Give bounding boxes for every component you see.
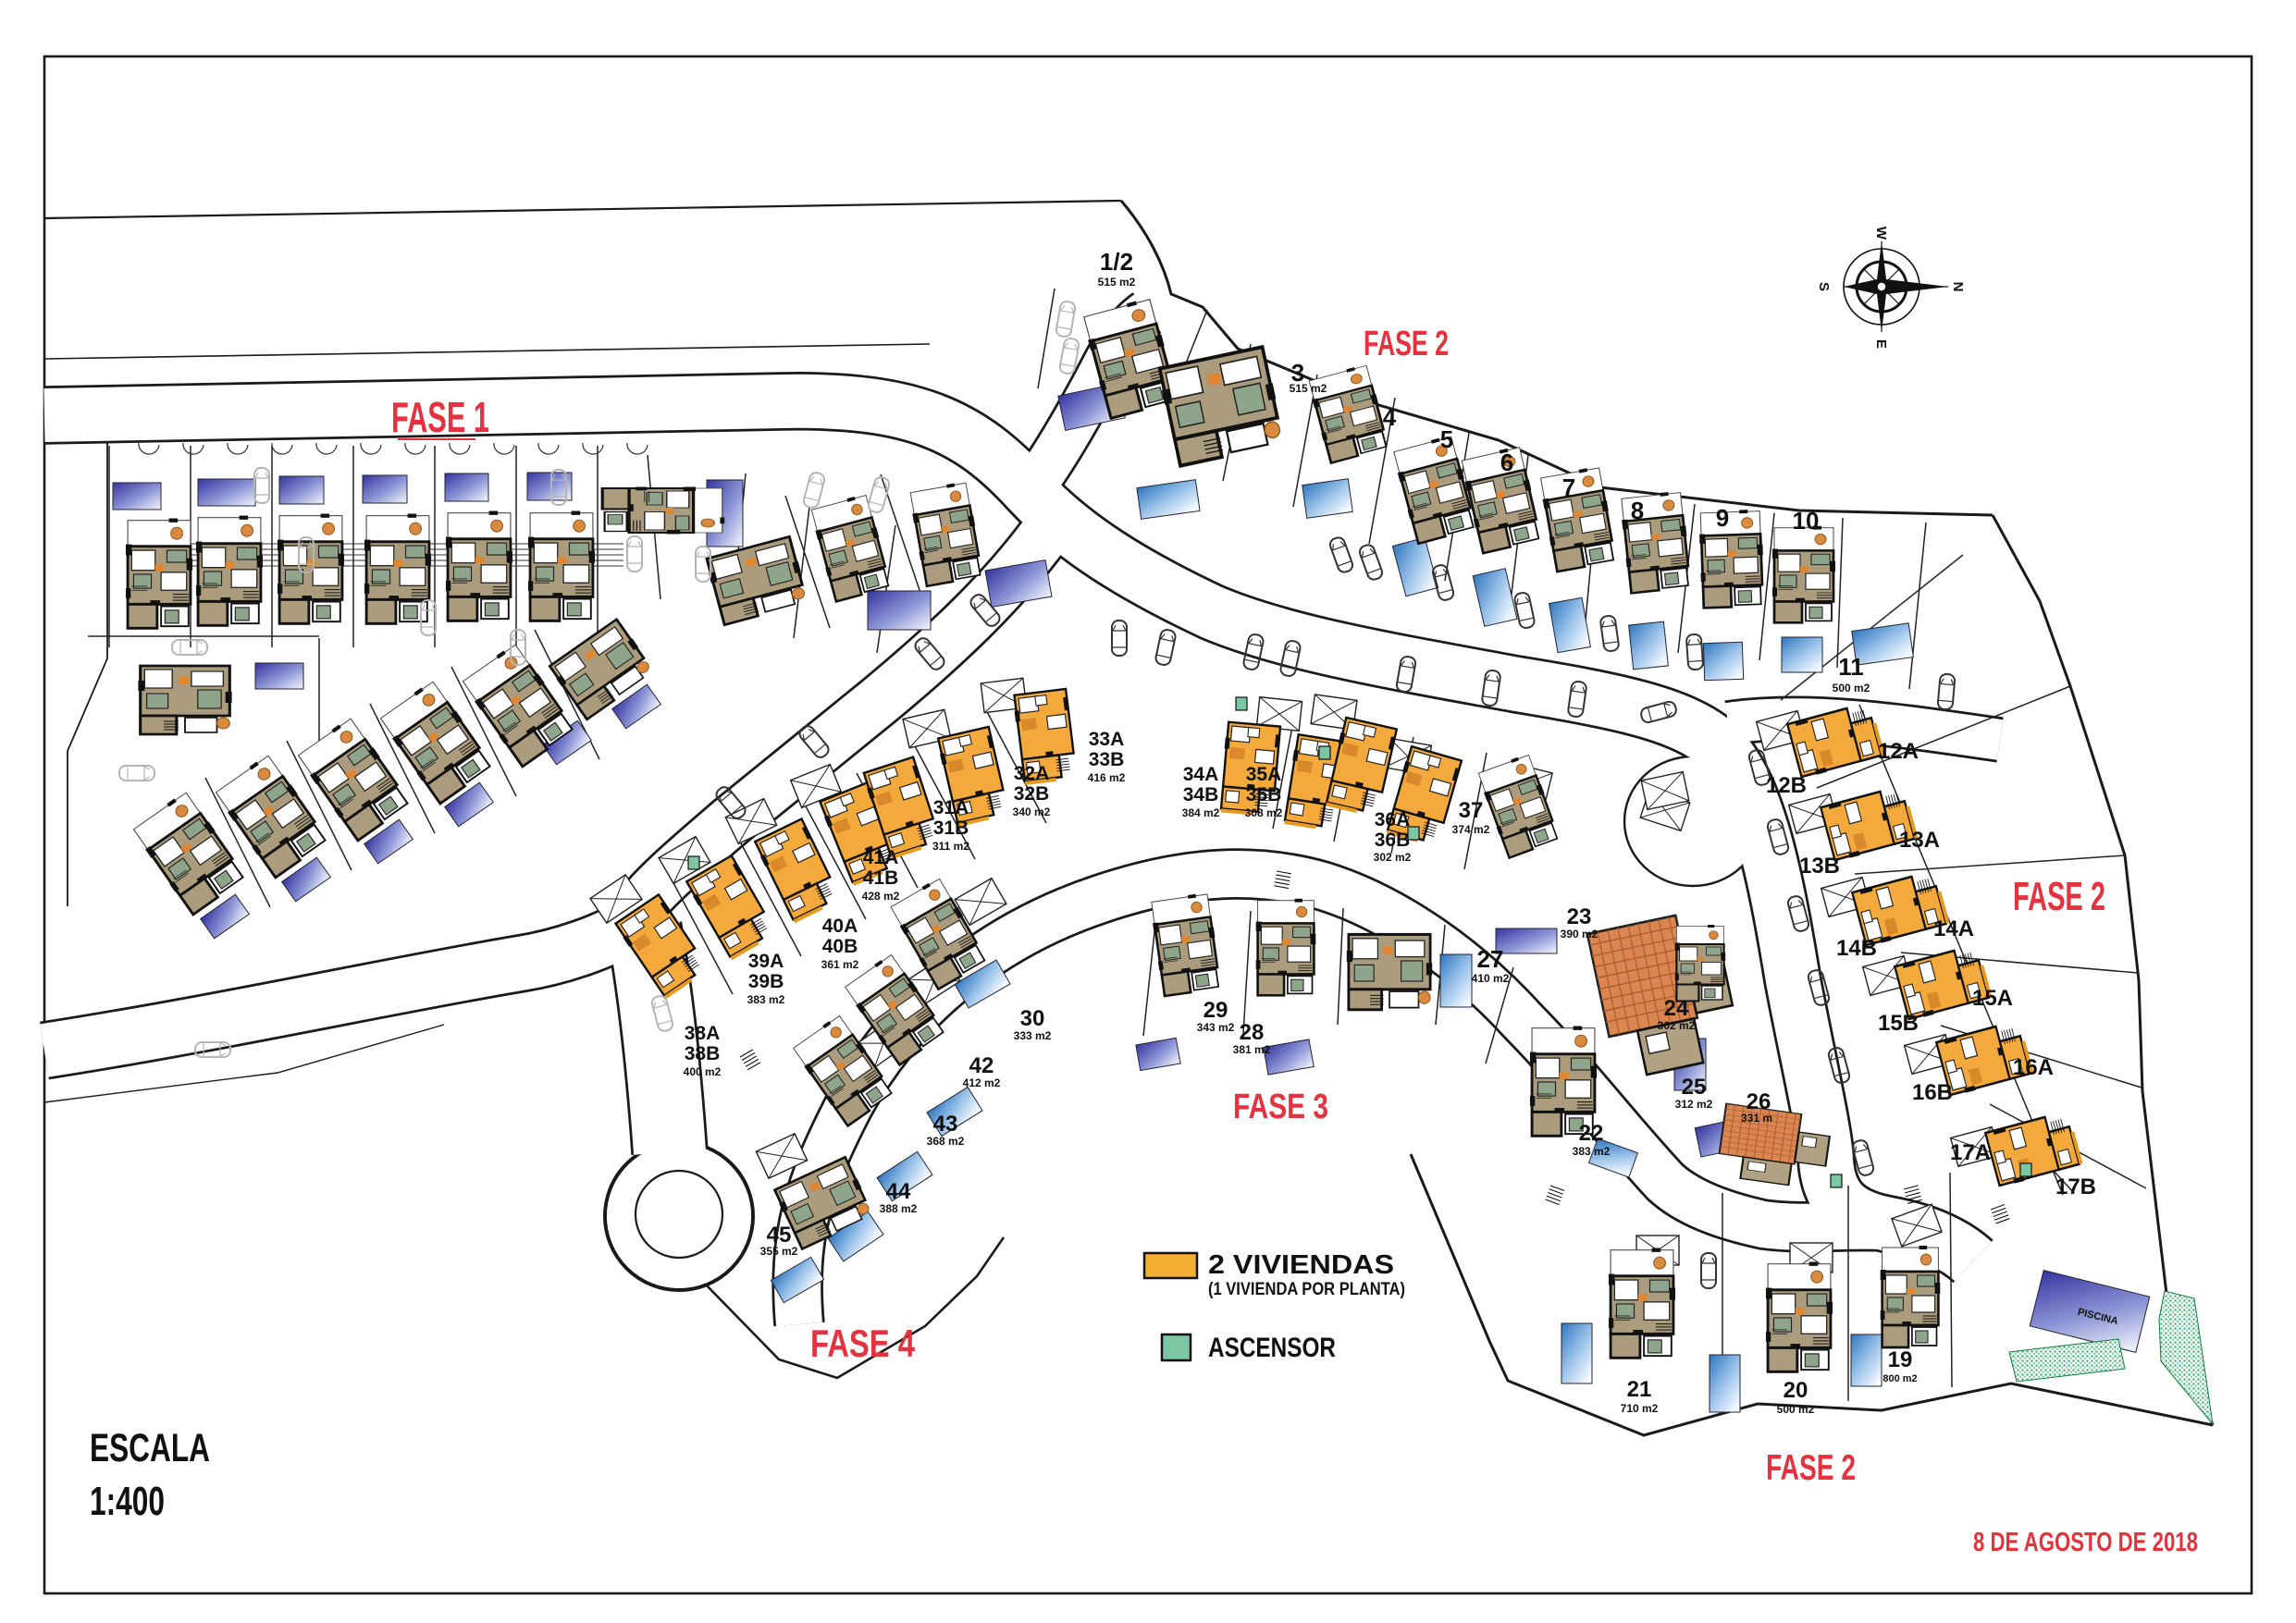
svg-text:400 m2: 400 m2 [684, 1065, 722, 1078]
svg-text:45: 45 [767, 1223, 792, 1248]
svg-text:28: 28 [1240, 1020, 1265, 1045]
svg-text:34A: 34A [1183, 764, 1219, 785]
svg-text:312 m2: 312 m2 [1675, 1098, 1713, 1111]
svg-text:21: 21 [1627, 1377, 1652, 1402]
svg-text:710 m2: 710 m2 [1621, 1402, 1659, 1415]
svg-text:27: 27 [1477, 945, 1504, 973]
svg-text:33A: 33A [1089, 729, 1125, 750]
svg-text:29: 29 [1204, 998, 1228, 1023]
svg-text:14B: 14B [1836, 936, 1877, 961]
svg-text:515 m2: 515 m2 [1098, 276, 1136, 289]
svg-text:35A: 35A [1246, 764, 1282, 785]
svg-text:331 m: 331 m [1741, 1112, 1772, 1125]
svg-text:515 m2: 515 m2 [1290, 382, 1327, 395]
svg-text:15A: 15A [1972, 986, 2013, 1011]
svg-text:368 m2: 368 m2 [927, 1135, 965, 1148]
svg-text:37: 37 [1459, 798, 1484, 823]
svg-text:24: 24 [1664, 996, 1689, 1021]
svg-text:FASE 2: FASE 2 [2013, 874, 2105, 919]
svg-text:374 m2: 374 m2 [1452, 823, 1490, 836]
svg-text:5: 5 [1440, 425, 1453, 453]
svg-text:13B: 13B [1799, 854, 1840, 879]
svg-text:(1 VIVIENDA POR PLANTA): (1 VIVIENDA POR PLANTA) [1208, 1280, 1405, 1299]
svg-text:38B: 38B [685, 1043, 721, 1064]
svg-text:7: 7 [1562, 473, 1575, 501]
svg-text:381 m2: 381 m2 [1233, 1043, 1271, 1056]
svg-text:390 m2: 390 m2 [1561, 928, 1599, 941]
svg-text:40B: 40B [822, 936, 858, 957]
svg-text:17B: 17B [2055, 1174, 2096, 1199]
svg-text:8: 8 [1631, 497, 1644, 524]
svg-text:N: N [1950, 282, 1966, 292]
svg-text:383 m2: 383 m2 [1573, 1145, 1611, 1158]
svg-text:355 m2: 355 m2 [760, 1245, 798, 1258]
svg-text:FASE 3: FASE 3 [1233, 1088, 1328, 1126]
svg-text:12A: 12A [1878, 739, 1919, 764]
svg-text:26: 26 [1747, 1089, 1771, 1114]
svg-text:39A: 39A [748, 951, 784, 972]
svg-text:41B: 41B [863, 867, 899, 889]
svg-text:ASCENSOR: ASCENSOR [1208, 1333, 1336, 1363]
svg-text:308 m2: 308 m2 [1245, 806, 1283, 819]
svg-text:15B: 15B [1878, 1011, 1919, 1036]
svg-text:383 m2: 383 m2 [747, 993, 785, 1006]
svg-text:36A: 36A [1375, 809, 1411, 830]
svg-text:9: 9 [1716, 504, 1729, 532]
svg-text:43: 43 [933, 1112, 958, 1137]
svg-text:343 m2: 343 m2 [1197, 1021, 1235, 1034]
svg-text:S: S [1816, 282, 1832, 291]
svg-text:31A: 31A [933, 797, 969, 818]
svg-text:30: 30 [1020, 1006, 1045, 1031]
svg-text:31B: 31B [933, 818, 969, 839]
svg-text:FASE 2: FASE 2 [1364, 325, 1449, 363]
svg-text:FASE 2: FASE 2 [1766, 1448, 1856, 1488]
svg-text:384 m2: 384 m2 [1182, 806, 1220, 819]
svg-text:23: 23 [1567, 904, 1592, 929]
svg-text:19: 19 [1888, 1347, 1913, 1372]
svg-text:340 m2: 340 m2 [1013, 805, 1051, 818]
svg-text:500 m2: 500 m2 [1777, 1403, 1815, 1416]
svg-text:302 m2: 302 m2 [1658, 1019, 1696, 1032]
svg-text:333 m2: 333 m2 [1014, 1029, 1052, 1042]
svg-text:11: 11 [1838, 653, 1864, 681]
svg-text:1/2: 1/2 [1100, 248, 1133, 276]
svg-text:8 DE AGOSTO DE 2018: 8 DE AGOSTO DE 2018 [1973, 1528, 2198, 1557]
svg-text:16B: 16B [1912, 1080, 1953, 1105]
svg-text:361 m2: 361 m2 [821, 958, 859, 971]
svg-text:34B: 34B [1183, 784, 1219, 805]
svg-text:33B: 33B [1089, 749, 1125, 770]
svg-text:38A: 38A [685, 1023, 721, 1044]
svg-text:1:400: 1:400 [90, 1479, 165, 1524]
svg-text:16A: 16A [2013, 1055, 2054, 1080]
svg-text:311 m2: 311 m2 [932, 840, 969, 853]
svg-text:41A: 41A [863, 847, 899, 868]
svg-text:2 VIVIENDAS: 2 VIVIENDAS [1208, 1250, 1394, 1280]
svg-text:12B: 12B [1766, 773, 1807, 798]
svg-text:ESCALA: ESCALA [90, 1426, 210, 1470]
svg-text:302 m2: 302 m2 [1374, 851, 1412, 864]
svg-text:20: 20 [1784, 1378, 1808, 1403]
svg-text:32B: 32B [1014, 783, 1050, 805]
svg-text:388 m2: 388 m2 [880, 1202, 918, 1215]
svg-text:13A: 13A [1899, 828, 1940, 853]
svg-text:32A: 32A [1014, 763, 1050, 784]
svg-text:416 m2: 416 m2 [1088, 771, 1126, 784]
svg-text:428 m2: 428 m2 [862, 890, 900, 903]
svg-text:500 m2: 500 m2 [1833, 682, 1870, 695]
svg-text:39B: 39B [748, 971, 784, 992]
svg-text:410 m2: 410 m2 [1472, 972, 1510, 985]
svg-text:36B: 36B [1375, 830, 1411, 851]
svg-text:22: 22 [1579, 1121, 1604, 1146]
svg-text:35B: 35B [1246, 784, 1282, 805]
svg-text:14A: 14A [1933, 916, 1974, 941]
svg-text:800 m2: 800 m2 [1882, 1373, 1917, 1384]
svg-text:44: 44 [886, 1179, 911, 1204]
svg-text:FASE 1: FASE 1 [391, 393, 489, 441]
svg-text:FASE 4: FASE 4 [810, 1322, 915, 1365]
svg-text:412 m2: 412 m2 [963, 1076, 1001, 1089]
svg-text:17A: 17A [1950, 1140, 1991, 1165]
svg-text:42: 42 [969, 1053, 994, 1078]
svg-text:25: 25 [1682, 1075, 1707, 1100]
svg-text:6: 6 [1500, 449, 1513, 476]
svg-text:4: 4 [1383, 403, 1397, 431]
svg-text:40A: 40A [822, 916, 858, 937]
svg-text:W: W [1873, 227, 1889, 240]
svg-text:E: E [1873, 339, 1889, 349]
svg-text:10: 10 [1793, 507, 1820, 535]
